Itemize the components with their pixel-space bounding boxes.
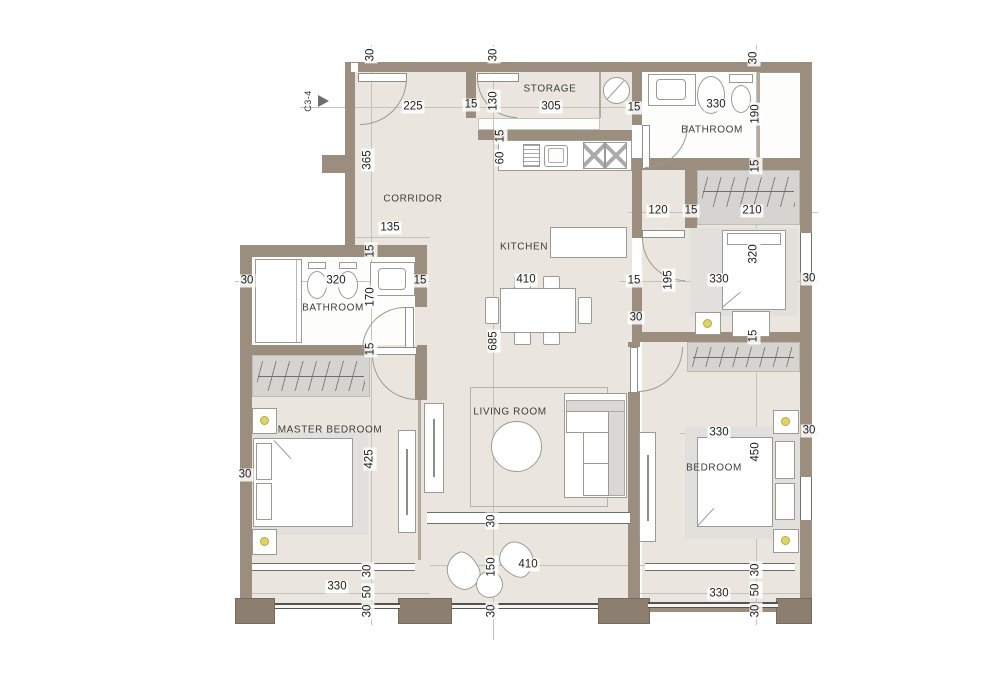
closet-rod: [693, 357, 794, 358]
dimension-label: 15: [626, 275, 643, 288]
floor-plan: C3-4 CORRIDOR STORAGE KITCHEN BATHROOM B…: [0, 0, 1000, 686]
dimension-label: 365: [362, 148, 375, 171]
door-leaf-bathroom-left: [405, 307, 414, 351]
column: [235, 598, 275, 624]
dimension-label: 30: [362, 563, 375, 580]
lamp-dot: [703, 319, 712, 328]
closet-rod: [258, 376, 364, 377]
wardrobe-panel: [424, 403, 444, 493]
coffee-table: [491, 421, 542, 472]
sofa-seat: [566, 411, 609, 433]
dimension-label: 15: [463, 99, 480, 112]
sink-icon: [378, 268, 406, 290]
sink-icon: [656, 79, 686, 100]
dimension-label: 425: [364, 447, 377, 470]
dimension-label: 30: [486, 513, 499, 530]
closet-rod: [703, 191, 794, 192]
dish-rack: [523, 144, 540, 167]
wall-left-outer: [240, 257, 252, 622]
wall-smallroom-bottom: [632, 332, 812, 342]
column: [598, 598, 650, 624]
room-label-bedroom: BEDROOM: [686, 463, 742, 474]
wall-closet-stub: [685, 170, 697, 228]
wall-right-outer-lower: [800, 520, 812, 608]
wardrobe-handle: [406, 449, 408, 515]
wall-pilaster: [322, 155, 347, 173]
room-label-bathroom-top: BATHROOM: [681, 125, 743, 136]
toilet-tank: [308, 262, 326, 269]
dimension-label: 50: [362, 584, 375, 601]
dimension-label: 30: [237, 469, 254, 482]
lamp-dot: [260, 416, 269, 425]
dimension-label: 120: [646, 205, 669, 218]
window-bedroom: [645, 563, 795, 571]
entry-arrow-icon: [318, 95, 329, 107]
sofa-seat: [583, 463, 609, 496]
sliding-door-balcony: [427, 512, 630, 524]
dimension-label: 50: [750, 582, 763, 599]
bidet-tank: [339, 262, 357, 269]
dimension-label: 30: [362, 603, 375, 620]
pillow: [775, 441, 795, 479]
wardrobe-handle: [647, 455, 649, 521]
wall-right-outer-upper: [800, 62, 812, 233]
stove-icon: [605, 142, 627, 169]
window-smallroom: [800, 233, 812, 273]
balcony-railing: [452, 603, 598, 609]
room-label-master: MASTER BEDROOM: [278, 425, 383, 436]
shower-divider: [296, 260, 297, 342]
wardrobe-panel: [398, 430, 416, 533]
dimension-label: 15: [748, 328, 761, 345]
dining-chair: [485, 297, 499, 324]
window-bedroom-side: [800, 477, 812, 520]
column: [776, 598, 812, 624]
dimension-label: 15: [365, 341, 378, 358]
door-leaf-master: [372, 347, 417, 355]
stove-icon: [583, 142, 605, 169]
dimension-label: 685: [488, 329, 501, 352]
window-master: [252, 563, 415, 571]
lamp-dot: [260, 537, 269, 546]
dimension-label: 195: [663, 268, 676, 291]
dimension-label: 330: [707, 427, 730, 440]
dimension-label: 30: [486, 603, 499, 620]
kitchen-island: [550, 227, 627, 258]
dimension-label: 170: [365, 285, 378, 308]
closet-hangers: [702, 177, 795, 207]
dimension-label: 330: [704, 99, 727, 112]
dimension-label: 135: [378, 222, 401, 235]
pillow: [775, 483, 795, 520]
dimension-label: 30: [748, 50, 761, 67]
dimension-label: 30: [239, 275, 256, 288]
dimension-label: 330: [325, 581, 348, 594]
wardrobe-panel: [639, 432, 656, 542]
dimension-label: 15: [495, 128, 508, 145]
room-label-storage: STORAGE: [524, 84, 577, 95]
wall-bathroom-left-top: [240, 245, 427, 257]
dimension-label: 15: [683, 205, 700, 218]
dimension-label: 330: [707, 274, 730, 287]
dining-table: [500, 288, 576, 333]
wall-top: [345, 62, 812, 72]
wall-kitchen-right-a: [632, 170, 642, 238]
dining-chair: [514, 332, 531, 345]
dining-chair: [578, 297, 592, 324]
toilet-tank: [729, 74, 753, 83]
room-label-corridor: CORRIDOR: [383, 194, 442, 205]
dimension-label: 30: [488, 47, 501, 64]
kitchen-sink-basin: [548, 148, 564, 163]
dimension-line: [355, 237, 430, 238]
pillow: [256, 483, 272, 520]
floor-duct: [760, 72, 800, 158]
room-label-living: LIVING ROOM: [473, 407, 546, 418]
pillow: [256, 443, 272, 480]
dimension-label: 410: [514, 274, 537, 287]
dimension-label: 30: [750, 562, 763, 579]
wall-right-outer-mid: [800, 273, 812, 477]
dimension-label: 30: [801, 273, 818, 286]
lamp-dot: [781, 536, 790, 545]
room-label-kitchen: KITCHEN: [500, 242, 548, 253]
toilet-icon: [731, 85, 751, 113]
dimension-label: 15: [412, 275, 429, 288]
dining-chair: [543, 332, 560, 345]
dimension-label: 15: [365, 243, 378, 260]
dimension-label: 330: [707, 588, 730, 601]
dimension-label: 320: [324, 275, 347, 288]
dimension-label: 30: [750, 603, 763, 620]
dimension-label: 210: [740, 205, 763, 218]
dimension-label: 410: [516, 559, 539, 572]
door-leaf-bedroom: [630, 347, 638, 393]
dimension-label: 225: [401, 101, 424, 114]
dimension-label: 30: [628, 312, 645, 325]
wardrobe-handle: [433, 419, 435, 477]
wall-master-living: [418, 400, 421, 560]
wall-bathroom-top-left-a: [632, 62, 642, 125]
dimension-label: 305: [539, 101, 562, 114]
dimension-label: 30: [365, 47, 378, 64]
sofa-seat: [583, 432, 609, 464]
wall-washer-divider: [599, 72, 601, 118]
shower-icon: [255, 259, 302, 343]
door-jamb: [351, 63, 358, 72]
column: [398, 598, 452, 624]
dimension-label: 15: [626, 102, 643, 115]
lamp-dot: [781, 417, 790, 426]
closet-bedroom: [687, 342, 800, 372]
dimension-label: 30: [801, 425, 818, 438]
dimension-label: 320: [748, 242, 761, 265]
dimension-label: 130: [488, 89, 501, 112]
dimension-label: 15: [750, 158, 763, 175]
unit-label: C3-4: [303, 90, 313, 112]
dimension-label: 150: [486, 555, 499, 578]
dimension-label: 190: [750, 102, 763, 125]
balcony-railing: [275, 603, 400, 609]
closet-master: [252, 355, 370, 397]
door-leaf-smallroom: [642, 230, 685, 238]
sofa-back: [608, 411, 625, 496]
wall-bathroom-left-bottom-b: [417, 345, 427, 355]
dimension-label: 60: [495, 150, 508, 167]
dimension-label: 450: [750, 440, 763, 463]
wall-bathroom-left-bottom-a: [240, 345, 372, 355]
room-label-bathroom-left: BATHROOM: [302, 303, 364, 314]
